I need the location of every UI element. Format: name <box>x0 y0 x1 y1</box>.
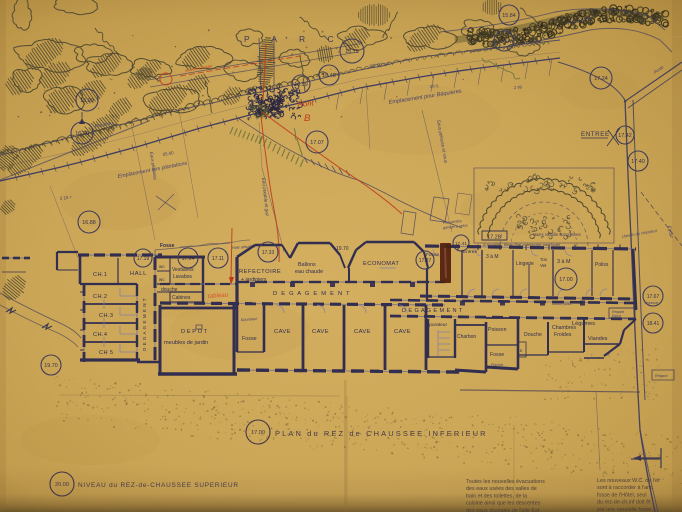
svg-text:Ton: Ton <box>540 257 548 262</box>
svg-text:wc: wc <box>159 264 165 269</box>
svg-text:17.04: 17.04 <box>182 256 195 262</box>
svg-text:Froides: Froides <box>554 332 572 338</box>
svg-text:wc: wc <box>159 277 165 282</box>
svg-text:CH.3: CH.3 <box>99 313 113 319</box>
svg-text:Charbon: Charbon <box>457 334 476 340</box>
svg-text:Cabines: Cabines <box>172 295 191 301</box>
svg-text:17.00: 17.00 <box>559 277 573 283</box>
svg-text:17.11: 17.11 <box>212 256 224 262</box>
svg-text:B: B <box>304 113 311 124</box>
svg-text:Poliss: Poliss <box>595 262 609 268</box>
svg-text:Terrasse: Terrasse <box>644 301 658 305</box>
svg-text:Ballons: Ballons <box>298 262 316 268</box>
svg-text:NIVEAU du REZ-de-CHAUSSEE: NIVEAU du REZ-de-CHAUSSEE SUPERIEUR <box>78 482 239 489</box>
svg-text:Fosse: Fosse <box>160 243 175 249</box>
svg-text:Epurateur: Epurateur <box>426 322 447 328</box>
svg-text:29 0,: 29 0, <box>430 83 440 89</box>
svg-text:2 99: 2 99 <box>514 84 523 90</box>
svg-text:17.28: 17.28 <box>487 234 501 240</box>
svg-text:D E P O T: D E P O T <box>181 329 208 335</box>
svg-text:17.07: 17.07 <box>310 140 324 146</box>
svg-text:Pont: Pont <box>297 98 315 109</box>
svg-text:CAVE: CAVE <box>274 329 291 335</box>
svg-text:CH.1: CH.1 <box>93 272 107 278</box>
svg-text:15.99: 15.99 <box>80 98 94 104</box>
svg-text:17.40: 17.40 <box>631 159 645 165</box>
svg-text:Fosse: Fosse <box>242 336 257 342</box>
svg-text:17.24: 17.24 <box>594 76 608 82</box>
svg-text:ENTREE: ENTREE <box>581 131 610 138</box>
svg-text:17.42: 17.42 <box>618 133 632 139</box>
svg-text:PLAN du REZ de CHAUSSEE I: PLAN du REZ de CHAUSSEE INFERIEUR <box>275 429 488 438</box>
svg-text:Fosse: Fosse <box>426 252 439 258</box>
svg-text:tableau: tableau <box>208 292 229 300</box>
svg-text:D E G A G E M E N T: D E G A G E M E N T <box>402 308 463 314</box>
svg-text:17.00: 17.00 <box>251 430 265 436</box>
svg-text:Viandes: Viandes <box>588 336 608 342</box>
svg-text:Toutes les nouvelles évacuatio: Toutes les nouvelles évacuations <box>466 479 545 485</box>
svg-text:D E G A G E M E N T: D E G A G E M E N T <box>273 291 351 297</box>
svg-text:Fosse: Fosse <box>490 352 504 358</box>
svg-text:Vet: Vet <box>540 263 547 268</box>
svg-text:3 à M: 3 à M <box>557 259 571 265</box>
svg-text:15.84: 15.84 <box>502 13 516 19</box>
svg-text:douche: douche <box>161 287 178 293</box>
svg-text:sont à raccorder à l'anc: sont à raccorder à l'anc <box>597 485 653 491</box>
svg-text:D E G A G E M E N T: D E G A G E M E N T <box>142 298 147 351</box>
svg-text:16.20: 16.20 <box>75 131 89 137</box>
svg-text:du rez-de-ch.inf doit êt: du rez-de-ch.inf doit êt <box>597 500 651 506</box>
svg-text:Egout: Egout <box>612 314 622 318</box>
svg-text:16.99: 16.99 <box>294 82 308 88</box>
svg-text:eau chaude: eau chaude <box>295 269 323 275</box>
svg-text:CH.4: CH.4 <box>93 332 107 338</box>
svg-text:Lingerie: Lingerie <box>516 261 534 267</box>
svg-text:18.41: 18.41 <box>647 321 660 327</box>
svg-text:17.33: 17.33 <box>262 250 275 256</box>
svg-text:15.75: 15.75 <box>345 49 359 55</box>
svg-text:des eaux usées des salles de: des eaux usées des salles de <box>466 486 537 492</box>
svg-text:CAVE: CAVE <box>354 329 371 335</box>
svg-text:16.5A: 16.5A <box>497 39 511 45</box>
svg-text:Douche: Douche <box>524 332 542 338</box>
svg-text:Lavabos: Lavabos <box>173 274 192 280</box>
svg-text:P A R C: P A R C <box>244 34 344 44</box>
svg-text:19.70: 19.70 <box>44 363 58 369</box>
svg-text:Regard: Regard <box>655 374 668 378</box>
svg-text:meubles de jardin: meubles de jardin <box>164 340 208 346</box>
svg-text:20.00: 20.00 <box>55 482 69 488</box>
svg-text:par une nouvelle fosse: par une nouvelle fosse <box>597 507 651 512</box>
svg-text:CAVE: CAVE <box>312 329 329 335</box>
svg-text:CH.2: CH.2 <box>93 294 107 300</box>
svg-text:16.88: 16.88 <box>82 220 96 226</box>
svg-text:CH 5: CH 5 <box>99 350 113 356</box>
svg-text:17.67: 17.67 <box>647 294 660 300</box>
svg-text:17.19: 17.19 <box>137 256 150 262</box>
svg-text:17.37: 17.37 <box>419 258 432 264</box>
svg-text:16.40: 16.40 <box>322 73 336 79</box>
svg-text:Entrée: Entrée <box>463 249 477 255</box>
svg-text:Monte plats: Monte plats <box>552 302 572 306</box>
svg-text:3 à M: 3 à M <box>486 254 499 260</box>
svg-text:des eaux pluviales de l'aile: des eaux pluviales de l'aile Est <box>466 508 540 512</box>
svg-text:bain et des toilettes, de la: bain et des toilettes, de la <box>466 493 527 499</box>
svg-text:REFECTOIRE: REFECTOIRE <box>239 269 281 275</box>
svg-text:cuisine ainsi que les descente: cuisine ainsi que les descentes <box>466 501 541 507</box>
svg-text:CAVE: CAVE <box>394 329 411 335</box>
svg-text:Haies rocaille supprimees: Haies rocaille supprimees <box>533 232 582 237</box>
svg-text:19.70: 19.70 <box>336 246 349 252</box>
svg-text:Piscine: Piscine <box>491 363 503 367</box>
svg-text:fosse de l'Hôtel, seul: fosse de l'Hôtel, seul <box>597 492 647 498</box>
svg-text:Légumes: Légumes <box>572 321 595 327</box>
svg-text:Poisson: Poisson <box>488 327 507 333</box>
svg-text:ECONOMAT: ECONOMAT <box>363 261 399 267</box>
svg-text:HALL: HALL <box>130 271 147 277</box>
